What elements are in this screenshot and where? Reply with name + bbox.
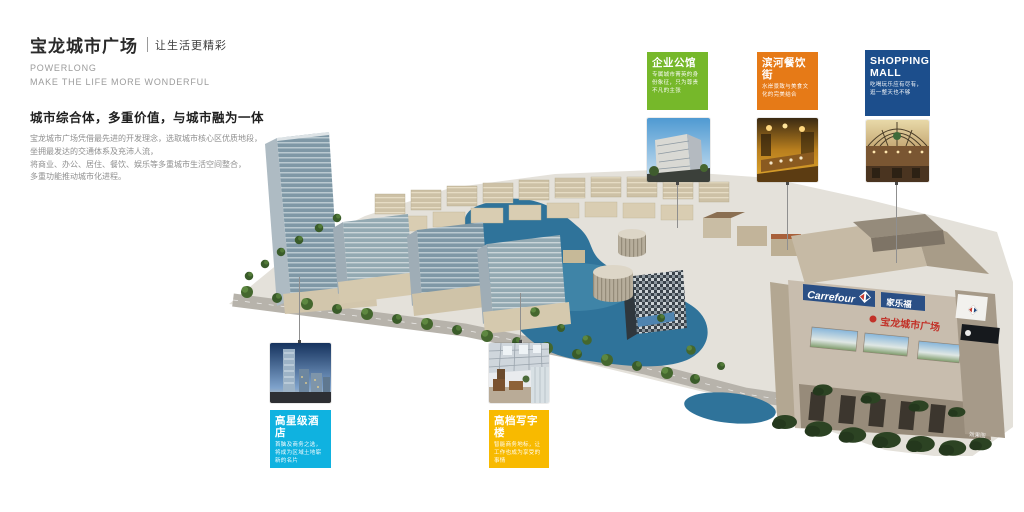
- callout-desc: 首脑及商务之选，将成为区域土地崭新的名片: [275, 442, 326, 466]
- callout-label-office-tower: 高档写字楼 智能商务地标，让工作也成为享受的事情: [489, 410, 549, 468]
- enterprise-mansion-photo: [647, 118, 710, 182]
- tagline: 让生活更精彩: [155, 37, 227, 53]
- shopping-mall-photo: [866, 120, 929, 182]
- callout-title: 滨河餐饮街: [762, 57, 813, 81]
- connector-shopping-mall: [896, 183, 897, 263]
- callout-desc: 智能商务地标，让工作也成为享受的事情: [494, 442, 544, 466]
- callout-desc: 专属城市菁英的身份象征，只为尊贵不凡的主张: [652, 72, 703, 96]
- connector-office-tower: [520, 293, 521, 342]
- office-tower-photo: [489, 343, 549, 403]
- slogan-line-2: MAKE THE LIFE MORE WONDERFUL: [30, 76, 280, 89]
- connector-riverside-dining: [787, 183, 788, 250]
- connector-enterprise-mansion: [677, 183, 678, 228]
- callout-desc: 吃喝玩乐应有尽有，逛一整天也不够: [870, 82, 925, 98]
- callout-title: 高档写字楼: [494, 415, 544, 439]
- connector-star-hotel: [299, 277, 300, 342]
- brochure-page: 宝龙城市广场 让生活更精彩 POWERLONG MAKE THE LIFE MO…: [0, 0, 1024, 512]
- callout-desc: 水岸景致与美食文化的完美结合: [762, 84, 813, 100]
- english-slogan: POWERLONG MAKE THE LIFE MORE WONDERFUL: [30, 62, 280, 89]
- callout-title: 企业公馆: [652, 57, 703, 69]
- callout-label-shopping-mall: SHOPPING MALL 吃喝玩乐应有尽有，逛一整天也不够: [865, 50, 930, 116]
- callout-title: SHOPPING MALL: [870, 55, 925, 79]
- page-title: 宝龙城市广场: [30, 32, 138, 57]
- riverside-dining-photo: [757, 118, 818, 182]
- callout-label-star-hotel: 高星级酒店 首脑及商务之选，将成为区域土地崭新的名片: [270, 410, 331, 468]
- title-divider: [147, 37, 148, 52]
- callout-label-riverside-dining: 滨河餐饮街 水岸景致与美食文化的完美结合: [757, 52, 818, 110]
- callout-label-enterprise-mansion: 企业公馆 专属城市菁英的身份象征，只为尊贵不凡的主张: [647, 52, 708, 110]
- star-hotel-photo: [270, 343, 331, 403]
- title-row: 宝龙城市广场 让生活更精彩: [30, 32, 280, 57]
- corner-carrefour-sign: [955, 294, 987, 321]
- powerlong-logo-icon: [870, 316, 877, 323]
- callout-title: 高星级酒店: [275, 415, 326, 439]
- slogan-line-1: POWERLONG: [30, 62, 280, 75]
